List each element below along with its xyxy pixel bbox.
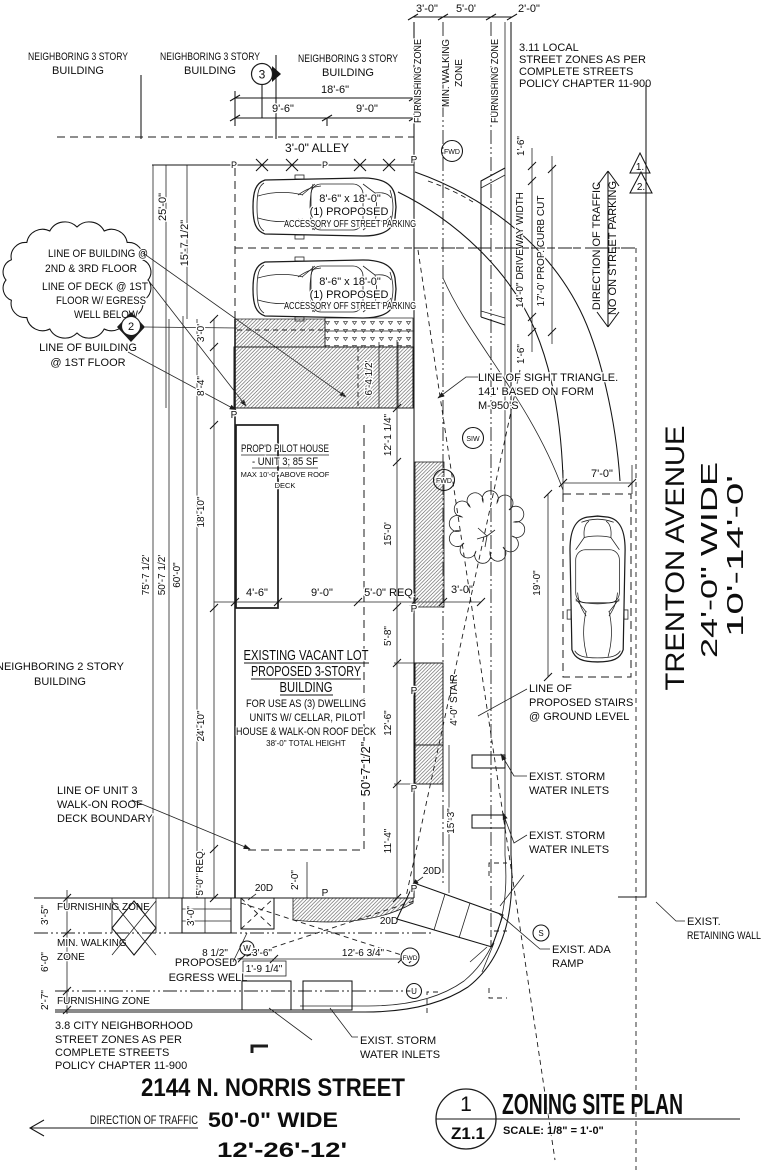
svg-text:6'-4 1/2': 6'-4 1/2' xyxy=(364,360,375,395)
svg-text:COMPLETE STREETS: COMPLETE STREETS xyxy=(519,66,633,78)
svg-text:3'-0": 3'-0" xyxy=(416,3,438,15)
svg-text:7'-0": 7'-0" xyxy=(591,468,613,480)
svg-text:1: 1 xyxy=(460,1093,472,1116)
svg-text:Z1.1: Z1.1 xyxy=(451,1124,485,1143)
svg-text:FURNISHING ZONE: FURNISHING ZONE xyxy=(413,39,424,123)
svg-text:M-950'S: M-950'S xyxy=(478,400,519,412)
svg-text:@ 1ST FLOOR: @ 1ST FLOOR xyxy=(50,357,125,369)
svg-text:20D: 20D xyxy=(423,866,441,877)
svg-text:9'-6": 9'-6" xyxy=(272,103,294,115)
svg-text:WATER INLETS: WATER INLETS xyxy=(529,844,609,856)
svg-text:PROP'D PILOT HOUSE: PROP'D PILOT HOUSE xyxy=(241,443,329,455)
svg-text:15'-3": 15'-3" xyxy=(446,808,457,834)
svg-text:FWD: FWD xyxy=(436,478,452,485)
svg-text:12'-26'-12': 12'-26'-12' xyxy=(217,1139,347,1162)
svg-text:3'-6": 3'-6" xyxy=(252,948,272,959)
svg-text:EGRESS WELL: EGRESS WELL xyxy=(169,972,248,984)
svg-text:(1) PROPOSED: (1) PROPOSED xyxy=(310,289,389,301)
svg-text:WATER INLETS: WATER INLETS xyxy=(529,785,609,797)
svg-text:LINE OF UNIT 3: LINE OF UNIT 3 xyxy=(57,785,137,797)
svg-text:SCALE: 1/8" = 1'-0": SCALE: 1/8" = 1'-0" xyxy=(503,1125,604,1137)
svg-text:ZONE: ZONE xyxy=(57,952,85,963)
svg-text:RAMP: RAMP xyxy=(552,958,584,970)
svg-text:EXIST.: EXIST. xyxy=(687,916,721,928)
svg-text:NEIGHBORING 3 STORY: NEIGHBORING 3 STORY xyxy=(160,51,261,63)
svg-text:8'-6" x 18'-0": 8'-6" x 18'-0" xyxy=(319,276,381,288)
svg-text:3'-5": 3'-5" xyxy=(40,905,51,925)
svg-text:P: P xyxy=(411,686,418,697)
svg-text:FWD: FWD xyxy=(403,955,418,962)
svg-text:2ND & 3RD FLOOR: 2ND & 3RD FLOOR xyxy=(45,263,137,275)
svg-text:2144 N. NORRIS STREET: 2144 N. NORRIS STREET xyxy=(141,1074,405,1102)
svg-text:75'-7 1/2': 75'-7 1/2' xyxy=(141,555,152,596)
svg-text:ZONING SITE PLAN: ZONING SITE PLAN xyxy=(502,1089,683,1121)
svg-text:17'-0' PROP. CURB CUT: 17'-0' PROP. CURB CUT xyxy=(536,196,547,307)
svg-text:MIN. WALKING: MIN. WALKING xyxy=(57,938,127,949)
svg-text:25'-0": 25'-0" xyxy=(157,193,169,221)
svg-text:BUILDING: BUILDING xyxy=(280,679,333,696)
svg-text:SIW: SIW xyxy=(466,436,480,443)
svg-text:LINE OF DECK @ 1ST: LINE OF DECK @ 1ST xyxy=(42,281,148,293)
svg-text:24'-10": 24'-10" xyxy=(196,710,207,741)
svg-text:P: P xyxy=(322,888,329,899)
svg-text:P: P xyxy=(411,604,418,615)
svg-text:3'-0" ALLEY: 3'-0" ALLEY xyxy=(285,141,349,155)
svg-text:1'-6": 1'-6" xyxy=(516,344,527,364)
svg-text:WATER INLETS: WATER INLETS xyxy=(360,1049,440,1061)
svg-text:18'-6": 18'-6" xyxy=(321,84,349,96)
svg-text:STREET ZONES AS PER: STREET ZONES AS PER xyxy=(55,1034,182,1046)
svg-text:POLICY CHAPTER 11-900: POLICY CHAPTER 11-900 xyxy=(519,78,651,90)
svg-text:5'-0" REQ.: 5'-0" REQ. xyxy=(364,587,416,599)
svg-text:18'-10": 18'-10" xyxy=(196,496,207,527)
svg-text:LINE OF BUILDING @: LINE OF BUILDING @ xyxy=(48,248,148,260)
svg-text:FWD: FWD xyxy=(444,149,460,156)
svg-text:STREET ZONES AS PER: STREET ZONES AS PER xyxy=(519,54,646,66)
svg-text:LINE OF: LINE OF xyxy=(529,683,572,695)
svg-text:NEIGHBORING 3 STORY: NEIGHBORING 3 STORY xyxy=(28,51,129,63)
svg-text:TRENTON AVENUE: TRENTON AVENUE xyxy=(660,426,690,691)
svg-text:11'-4": 11'-4" xyxy=(383,828,394,853)
svg-text:38'-0" TOTAL HEIGHT: 38'-0" TOTAL HEIGHT xyxy=(266,739,346,748)
svg-text:P: P xyxy=(322,160,328,170)
svg-text:NEIGHBORING 3 STORY: NEIGHBORING 3 STORY xyxy=(298,53,399,65)
svg-text:5'-0" REQ.: 5'-0" REQ. xyxy=(195,848,206,895)
svg-text:BUILDING: BUILDING xyxy=(184,65,236,77)
svg-text:COMPLETE STREETS: COMPLETE STREETS xyxy=(55,1047,169,1059)
svg-text:3: 3 xyxy=(259,68,266,82)
svg-text:DECK BOUNDARY: DECK BOUNDARY xyxy=(57,813,153,825)
svg-text:BUILDING: BUILDING xyxy=(52,65,104,77)
svg-text:ACCESSORY OFF STREET PARKING: ACCESSORY OFF STREET PARKING xyxy=(284,219,416,230)
svg-text:P: P xyxy=(411,784,418,795)
svg-text:FURNISHING ZONE: FURNISHING ZONE xyxy=(57,996,150,1007)
svg-text:P: P xyxy=(231,160,237,170)
svg-text:50'-7 1/2': 50'-7 1/2' xyxy=(157,555,168,596)
svg-text:9'-0": 9'-0" xyxy=(356,103,378,115)
svg-text:24'-0" WIDE: 24'-0" WIDE xyxy=(696,462,722,658)
svg-text:4'-0" STAIR: 4'-0" STAIR xyxy=(449,674,460,725)
svg-text:MIN. WALKING: MIN. WALKING xyxy=(441,39,452,107)
svg-text:2.: 2. xyxy=(637,182,645,193)
svg-text:S: S xyxy=(538,929,543,938)
svg-text:EXIST. STORM: EXIST. STORM xyxy=(529,830,605,842)
svg-text:19'-0": 19'-0" xyxy=(532,570,543,596)
svg-text:2'-7": 2'-7" xyxy=(40,990,51,1010)
svg-text:W: W xyxy=(243,944,251,953)
svg-text:DECK: DECK xyxy=(275,481,296,490)
svg-text:3'-0': 3'-0' xyxy=(196,324,207,342)
svg-text:60'-0": 60'-0" xyxy=(172,562,183,588)
svg-text:3.8 CITY NEIGHBORHOOD: 3.8 CITY NEIGHBORHOOD xyxy=(55,1020,193,1032)
svg-text:2'-0": 2'-0" xyxy=(518,3,540,15)
svg-text:6'-0": 6'-0" xyxy=(40,952,51,972)
svg-text:EXIST. STORM: EXIST. STORM xyxy=(360,1035,436,1047)
svg-text:POLICY CHAPTER 11-900: POLICY CHAPTER 11-900 xyxy=(55,1060,187,1072)
svg-text:2: 2 xyxy=(128,321,134,333)
svg-text:1'-9 1/4": 1'-9 1/4" xyxy=(246,964,283,975)
svg-text:UNITS W/ CELLAR, PILOT: UNITS W/ CELLAR, PILOT xyxy=(250,712,363,724)
svg-text:1'-6": 1'-6" xyxy=(516,136,527,156)
svg-text:8'-4": 8'-4" xyxy=(196,376,207,396)
svg-text:PROPOSED: PROPOSED xyxy=(175,957,237,969)
svg-text:DIRECTION OF TRAFFIC: DIRECTION OF TRAFFIC xyxy=(90,1115,198,1127)
svg-text:P: P xyxy=(411,884,418,895)
svg-text:1.: 1. xyxy=(636,162,644,173)
svg-text:3'-0": 3'-0" xyxy=(186,906,197,926)
svg-text:14'-0" DRIVEWAY WIDTH: 14'-0" DRIVEWAY WIDTH xyxy=(515,192,526,308)
svg-text:@ GROUND LEVEL: @ GROUND LEVEL xyxy=(529,711,629,723)
svg-text:8'-6" x 18'-0": 8'-6" x 18'-0" xyxy=(319,193,381,205)
svg-text:LINE OF BUILDING: LINE OF BUILDING xyxy=(39,342,137,354)
svg-text:FOR USE AS (3) DWELLING: FOR USE AS (3) DWELLING xyxy=(246,698,366,710)
svg-text:P: P xyxy=(411,155,418,166)
svg-text:141' BASED ON FORM: 141' BASED ON FORM xyxy=(478,386,594,398)
svg-text:RETAINING WALL: RETAINING WALL xyxy=(687,930,761,942)
svg-text:ACCESSORY OFF STREET PARKING: ACCESSORY OFF STREET PARKING xyxy=(284,301,416,312)
svg-text:3'-0": 3'-0" xyxy=(451,584,473,596)
svg-text:12'-6": 12'-6" xyxy=(383,710,394,736)
svg-text:U: U xyxy=(411,987,417,996)
svg-text:50'-7 1/2": 50'-7 1/2" xyxy=(358,741,373,796)
svg-text:- UNIT 3; 85 SF: - UNIT 3; 85 SF xyxy=(252,456,318,468)
svg-text:EXISTING VACANT LOT: EXISTING VACANT LOT xyxy=(244,647,369,664)
svg-text:15'-7 1/2": 15'-7 1/2" xyxy=(179,220,191,266)
svg-text:2'-0": 2'-0" xyxy=(290,870,301,890)
svg-text:HOUSE & WALK-ON ROOF DECK: HOUSE & WALK-ON ROOF DECK xyxy=(236,726,377,738)
svg-text:LINE OF SIGHT TRIANGLE.: LINE OF SIGHT TRIANGLE. xyxy=(478,372,618,384)
svg-text:5'-8": 5'-8" xyxy=(383,626,394,646)
svg-text:BUILDING: BUILDING xyxy=(34,676,86,688)
svg-text:20D: 20D xyxy=(380,916,398,927)
svg-text:P: P xyxy=(231,410,238,421)
svg-text:10'-14'-0': 10'-14'-0' xyxy=(722,475,748,637)
svg-text:50'-0" WIDE: 50'-0" WIDE xyxy=(208,1109,338,1132)
svg-text:12'-1 1/4": 12'-1 1/4" xyxy=(383,413,394,456)
svg-text:5'-0': 5'-0' xyxy=(456,3,476,15)
svg-text:12'-6 3/4": 12'-6 3/4" xyxy=(342,948,385,959)
svg-text:MAX 10'-0" ABOVE ROOF: MAX 10'-0" ABOVE ROOF xyxy=(241,470,330,479)
svg-text:DIRECTION OF TRAFFIC: DIRECTION OF TRAFFIC xyxy=(591,182,603,310)
svg-text:(1) PROPOSED: (1) PROPOSED xyxy=(310,206,389,218)
svg-text:PROPOSED STAIRS: PROPOSED STAIRS xyxy=(529,697,633,709)
svg-text:PROPOSED 3-STORY: PROPOSED 3-STORY xyxy=(251,663,361,680)
svg-text:FLOOR W/ EGRESS: FLOOR W/ EGRESS xyxy=(56,295,146,307)
svg-text:EXIST. ADA: EXIST. ADA xyxy=(552,944,611,956)
svg-text:ZONE: ZONE xyxy=(454,59,465,87)
svg-text:9'-0": 9'-0" xyxy=(311,587,333,599)
svg-text:WALK-ON ROOF: WALK-ON ROOF xyxy=(57,799,143,811)
svg-text:NEIGHBORING 2 STORY: NEIGHBORING 2 STORY xyxy=(0,661,125,673)
svg-text:FURNISHING ZONE: FURNISHING ZONE xyxy=(490,39,501,123)
svg-text:BUILDING: BUILDING xyxy=(322,67,374,79)
svg-text:15'-0': 15'-0' xyxy=(383,522,394,546)
svg-text:20D: 20D xyxy=(255,883,273,894)
svg-text:4'-6": 4'-6" xyxy=(246,587,268,599)
svg-text:EXIST. STORM: EXIST. STORM xyxy=(529,771,605,783)
svg-text:3.11 LOCAL: 3.11 LOCAL xyxy=(519,42,579,54)
